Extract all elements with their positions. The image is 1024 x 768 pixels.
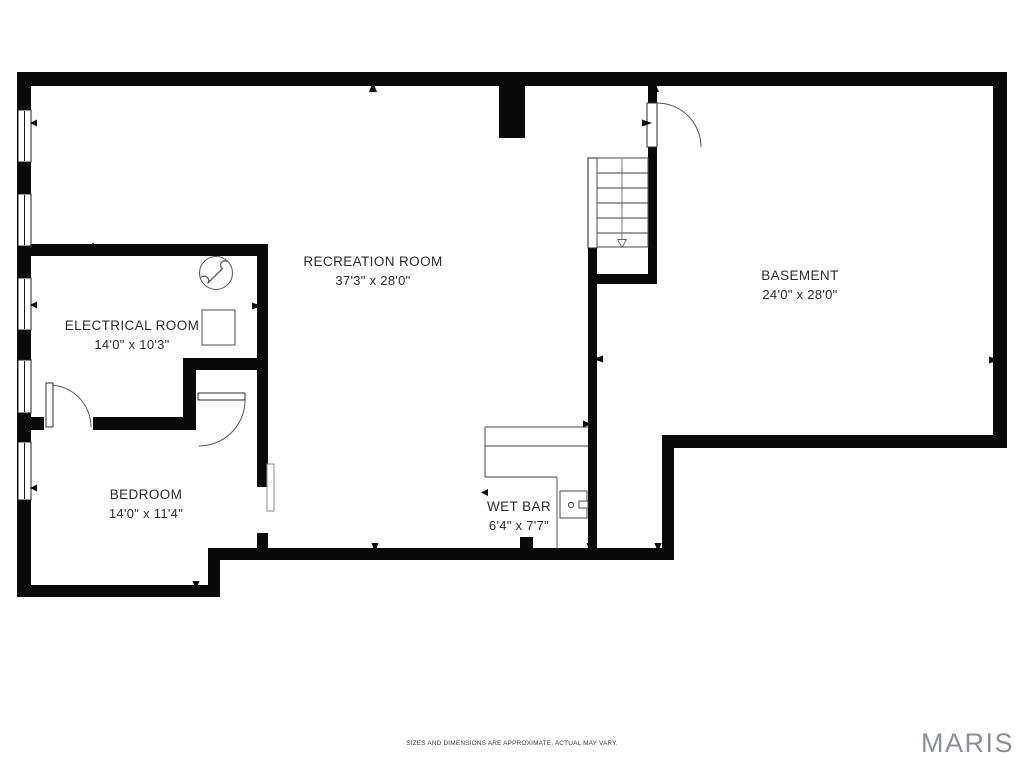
top-wall xyxy=(17,72,1007,86)
room-label-electrical-room: ELECTRICAL ROOM 14'0" x 10'3" xyxy=(65,318,200,352)
room-name: BASEMENT xyxy=(761,268,838,283)
floor-plan: RECREATION ROOM 37'3" x 28'0" BASEMENT 2… xyxy=(0,0,1024,768)
panel-square-icon xyxy=(202,310,235,345)
lower-bottom-wall xyxy=(208,548,674,560)
stair-treads-box xyxy=(597,158,648,247)
stair-treads xyxy=(597,173,648,233)
counter-outline xyxy=(485,427,588,477)
bedroom-top-wall-left xyxy=(17,417,44,430)
stair-right-wall xyxy=(648,147,657,283)
wet-bar-wall-stub xyxy=(520,537,533,550)
window xyxy=(18,194,31,246)
door-swing-arc xyxy=(49,385,91,427)
bedroom-top-wall-right xyxy=(93,417,196,430)
stair-rail xyxy=(588,158,597,248)
floor-plan-geometry xyxy=(0,0,1024,768)
sink-icon xyxy=(560,491,588,518)
bedroom-bottom-wall xyxy=(17,585,220,597)
room-dimensions: 14'0" x 10'3" xyxy=(65,337,200,352)
bedroom-closet-door xyxy=(198,393,245,446)
disclaimer-text: SIZES AND DIMENSIONS ARE APPROXIMATE, AC… xyxy=(406,740,618,747)
window xyxy=(18,360,31,413)
maris-logo: MARIS xyxy=(921,728,1014,759)
room-name: ELECTRICAL ROOM xyxy=(65,318,200,333)
basement-step-wall xyxy=(662,435,674,560)
door-swing-arc xyxy=(199,400,245,446)
window xyxy=(18,110,31,162)
room-dimensions: 14'0" x 11'4" xyxy=(109,506,183,521)
basement-stair-door xyxy=(647,103,701,147)
room-label-wet-bar: WET BAR 6'4" x 7'7" xyxy=(487,499,551,533)
bedroom-divider-stub xyxy=(257,533,268,553)
bedroom-door-leaf xyxy=(267,464,274,511)
electrical-room-door xyxy=(46,383,91,427)
room-name: WET BAR xyxy=(487,499,551,514)
window xyxy=(18,278,31,330)
room-name: BEDROOM xyxy=(109,487,183,502)
stair-bottom-wall xyxy=(588,274,657,284)
tick-wet-bar-counter xyxy=(481,489,488,496)
recreation-room-wall-stub xyxy=(499,86,525,138)
window xyxy=(18,442,31,500)
staircase xyxy=(588,158,648,248)
basement-bottom-wall xyxy=(662,435,1007,448)
right-wall xyxy=(993,72,1007,448)
stair-left-wall xyxy=(588,247,597,560)
door-leaf xyxy=(198,393,245,400)
door-leaf xyxy=(46,383,53,427)
sink-faucet xyxy=(579,501,588,508)
room-dimensions: 6'4" x 7'7" xyxy=(487,518,551,533)
door-swing-arc xyxy=(657,103,701,147)
doors xyxy=(46,103,701,511)
room-label-basement: BASEMENT 24'0" x 28'0" xyxy=(761,268,838,302)
room-name: RECREATION ROOM xyxy=(303,254,442,269)
electrical-symbols xyxy=(200,257,236,346)
room-dimensions: 24'0" x 28'0" xyxy=(761,287,838,302)
circle-lightning-bolt-icon xyxy=(200,257,233,290)
electrical-room-top-wall xyxy=(17,244,267,256)
stairs-down-arrow-icon xyxy=(618,240,627,248)
room-label-bedroom: BEDROOM 14'0" x 11'4" xyxy=(109,487,183,521)
door-leaf xyxy=(647,103,657,147)
room-label-recreation-room: RECREATION ROOM 37'3" x 28'0" xyxy=(303,254,442,288)
room-dimensions: 37'3" x 28'0" xyxy=(303,273,442,288)
